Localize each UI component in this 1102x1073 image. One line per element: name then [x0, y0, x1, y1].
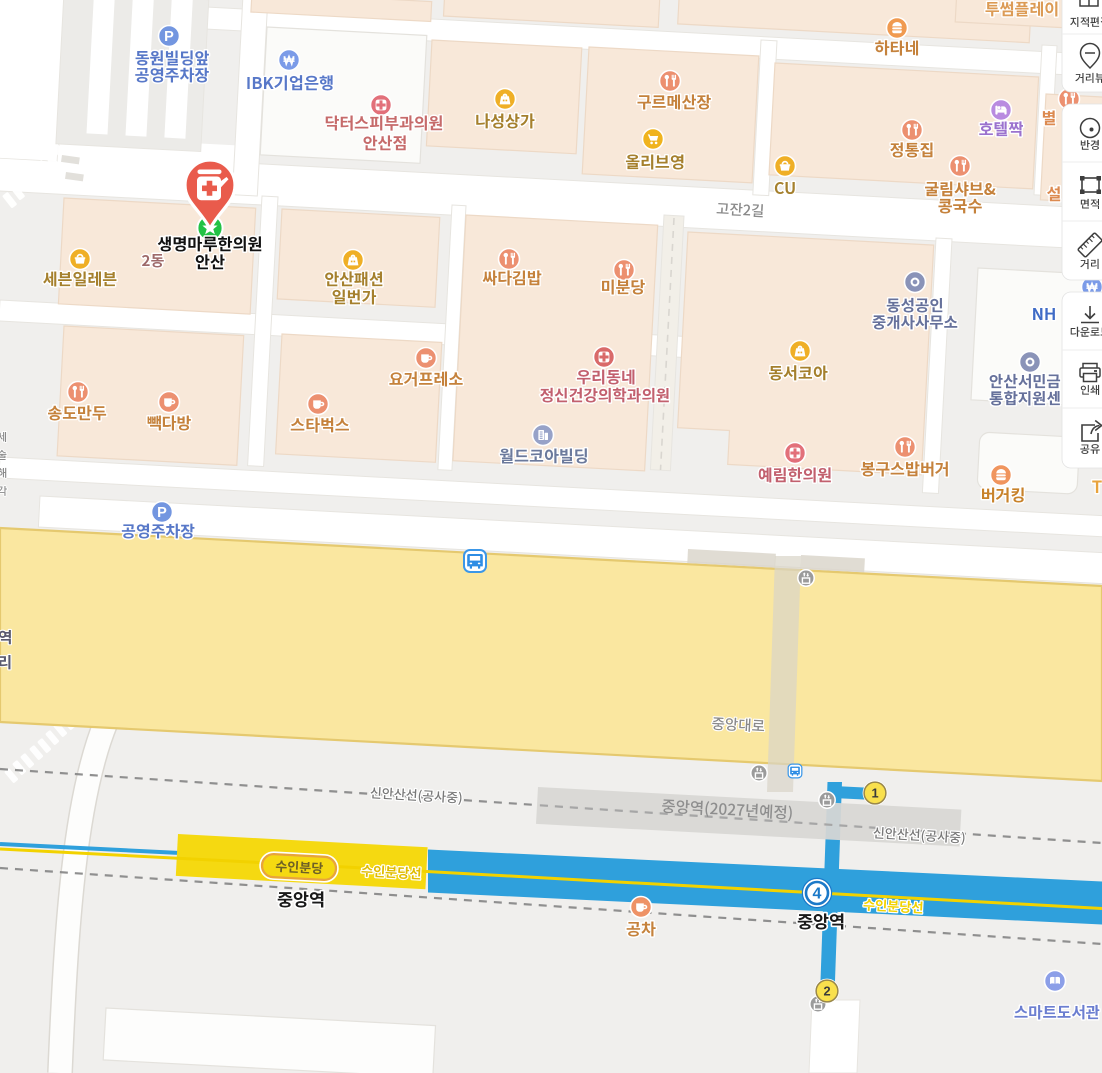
svg-text:콩국수: 콩국수 [938, 193, 983, 217]
svg-text:중앙역: 중앙역 [277, 887, 325, 912]
svg-text:지적편집: 지적편집 [1070, 14, 1102, 30]
svg-text:각: 각 [0, 483, 7, 499]
svg-text:해: 해 [0, 465, 7, 481]
svg-text:T: T [1092, 473, 1102, 498]
svg-text:다운로드: 다운로드 [1070, 324, 1102, 340]
svg-text:수인분당선: 수인분당선 [862, 894, 924, 916]
svg-text:인쇄: 인쇄 [1080, 382, 1100, 398]
svg-text:2: 2 [823, 984, 830, 999]
svg-text:미분당: 미분당 [601, 274, 646, 298]
svg-text:술: 술 [0, 447, 7, 463]
svg-text:싸다김밥: 싸다김밥 [482, 265, 542, 289]
svg-text:면적: 면적 [1080, 196, 1100, 212]
svg-text:P: P [164, 29, 174, 45]
svg-text:예림한의원: 예림한의원 [758, 462, 832, 486]
svg-text:반경: 반경 [1080, 137, 1100, 153]
svg-text:1: 1 [871, 786, 878, 801]
svg-text:세: 세 [0, 429, 7, 445]
svg-text:버거킹: 버거킹 [981, 482, 1026, 506]
svg-text:공영주차장: 공영주차장 [121, 518, 195, 542]
svg-text:정신건강의학과의원: 정신건강의학과의원 [540, 383, 671, 406]
svg-text:IBK기업은행: IBK기업은행 [246, 70, 334, 94]
svg-text:구르메산장: 구르메산장 [637, 89, 712, 113]
svg-text:별: 별 [1042, 105, 1057, 129]
svg-text:요거프레소: 요거프레소 [389, 366, 463, 390]
svg-text:빽다방: 빽다방 [147, 410, 192, 434]
svg-text:투썸플레이: 투썸플레이 [985, 0, 1059, 20]
svg-text:안산점: 안산점 [363, 130, 408, 154]
svg-text:스타벅스: 스타벅스 [290, 412, 350, 436]
svg-text:중앙역: 중앙역 [797, 909, 845, 934]
svg-text:동서코아: 동서코아 [768, 360, 828, 384]
svg-text:스마트도서관: 스마트도서관 [1014, 1001, 1101, 1023]
svg-text:거리뷰: 거리뷰 [1075, 70, 1102, 86]
svg-text:세븐일레븐: 세븐일레븐 [43, 266, 117, 290]
svg-text:일번가: 일번가 [332, 284, 377, 308]
svg-text:수인분당: 수인분당 [275, 856, 324, 878]
svg-text:나성상가: 나성상가 [475, 108, 535, 132]
svg-text:호텔짝: 호텔짝 [979, 116, 1024, 140]
svg-text:공영주차장: 공영주차장 [135, 62, 210, 86]
svg-text:월드코아빌딩: 월드코아빌딩 [499, 443, 588, 467]
svg-text:수인분당선: 수인분당선 [360, 860, 422, 882]
svg-text:봉구스밥버거: 봉구스밥버거 [860, 456, 949, 480]
svg-text:공유: 공유 [1080, 441, 1101, 457]
svg-text:고잔2길: 고잔2길 [716, 198, 765, 222]
svg-text:4: 4 [813, 886, 822, 903]
svg-text:리: 리 [0, 651, 12, 673]
svg-text:거리: 거리 [1080, 256, 1100, 272]
svg-text:중앙대로: 중앙대로 [711, 713, 765, 737]
svg-text:역: 역 [0, 626, 12, 648]
svg-text:올리브영: 올리브영 [625, 149, 685, 173]
svg-text:NH: NH [1032, 301, 1057, 325]
svg-text:설: 설 [1047, 181, 1062, 205]
svg-text:CU: CU [774, 175, 796, 199]
svg-text:송도만두: 송도만두 [47, 400, 107, 424]
svg-text:안산: 안산 [195, 249, 225, 273]
svg-text:공차: 공차 [626, 916, 656, 940]
svg-text:정통집: 정통집 [890, 137, 935, 161]
svg-text:통합지원센: 통합지원센 [989, 387, 1061, 409]
svg-text:중개사사무소: 중개사사무소 [872, 311, 958, 333]
svg-text:하타네: 하타네 [875, 35, 920, 59]
